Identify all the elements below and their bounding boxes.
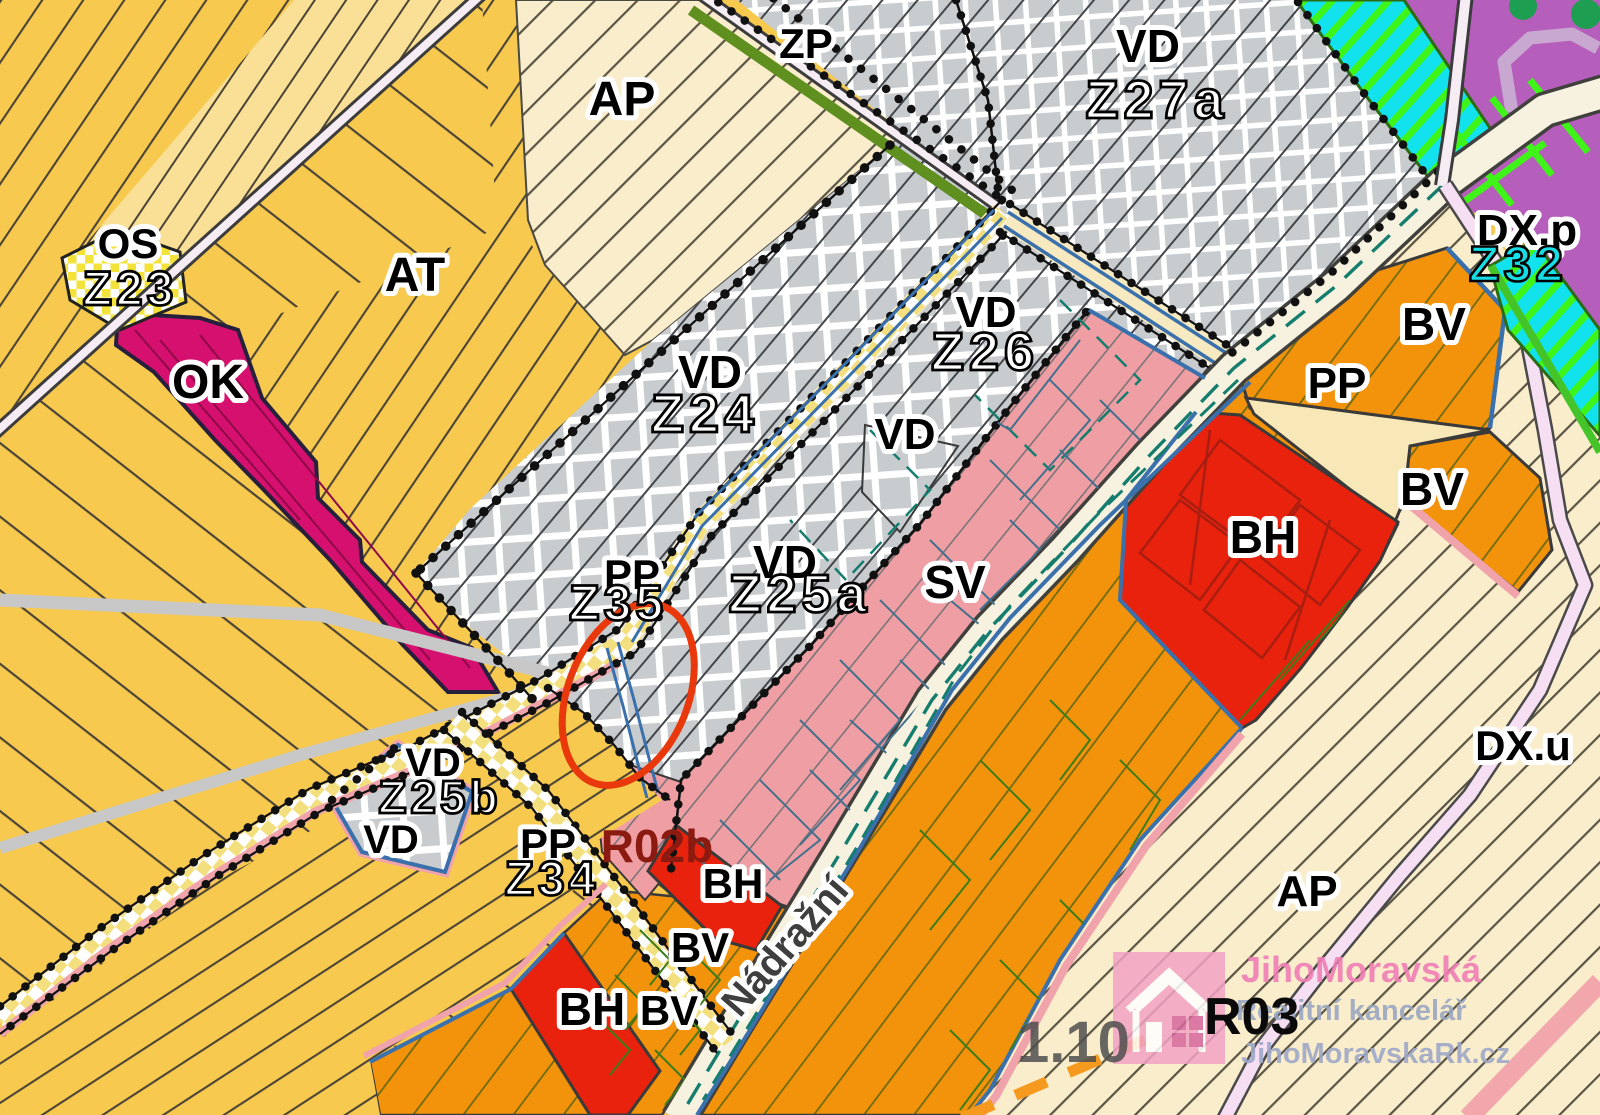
svg-text:AP: AP: [1276, 867, 1337, 916]
svg-text:Z23: Z23: [83, 263, 178, 316]
svg-text:DX.u: DX.u: [1475, 722, 1571, 769]
svg-text:Z24: Z24: [651, 384, 759, 444]
svg-text:Z26: Z26: [931, 322, 1039, 382]
svg-text:VD: VD: [874, 410, 935, 459]
svg-text:BV: BV: [1402, 298, 1466, 350]
svg-text:1.10: 1.10: [1017, 1010, 1130, 1075]
svg-text:JihoMoravskaRk.cz: JihoMoravskaRk.cz: [1241, 1038, 1510, 1070]
svg-text:BH: BH: [1230, 511, 1296, 563]
svg-text:Z27a: Z27a: [1085, 70, 1228, 130]
svg-text:AP: AP: [589, 73, 656, 126]
svg-text:BV: BV: [1400, 463, 1464, 515]
svg-text:BV: BV: [640, 987, 698, 1034]
svg-text:PP: PP: [1308, 359, 1367, 408]
svg-text:BH: BH: [559, 983, 625, 1035]
svg-text:BV: BV: [671, 924, 729, 971]
svg-text:ZP: ZP: [779, 20, 833, 67]
svg-text:OK: OK: [172, 356, 244, 409]
svg-text:Z35: Z35: [569, 575, 667, 631]
svg-text:BH: BH: [703, 860, 764, 907]
svg-text:VD: VD: [363, 818, 419, 862]
svg-text:JihoMoravská: JihoMoravská: [1241, 949, 1482, 990]
svg-text:Z34: Z34: [505, 853, 600, 906]
svg-text:SV: SV: [924, 556, 986, 608]
svg-text:Z32: Z32: [1469, 236, 1567, 292]
svg-text:Z25b: Z25b: [378, 771, 501, 823]
svg-text:OS: OS: [98, 220, 159, 267]
svg-text:Z25a: Z25a: [728, 564, 871, 624]
svg-text:R02b: R02b: [601, 820, 713, 872]
svg-text:AT: AT: [385, 249, 445, 302]
svg-text:VD: VD: [1116, 20, 1180, 72]
